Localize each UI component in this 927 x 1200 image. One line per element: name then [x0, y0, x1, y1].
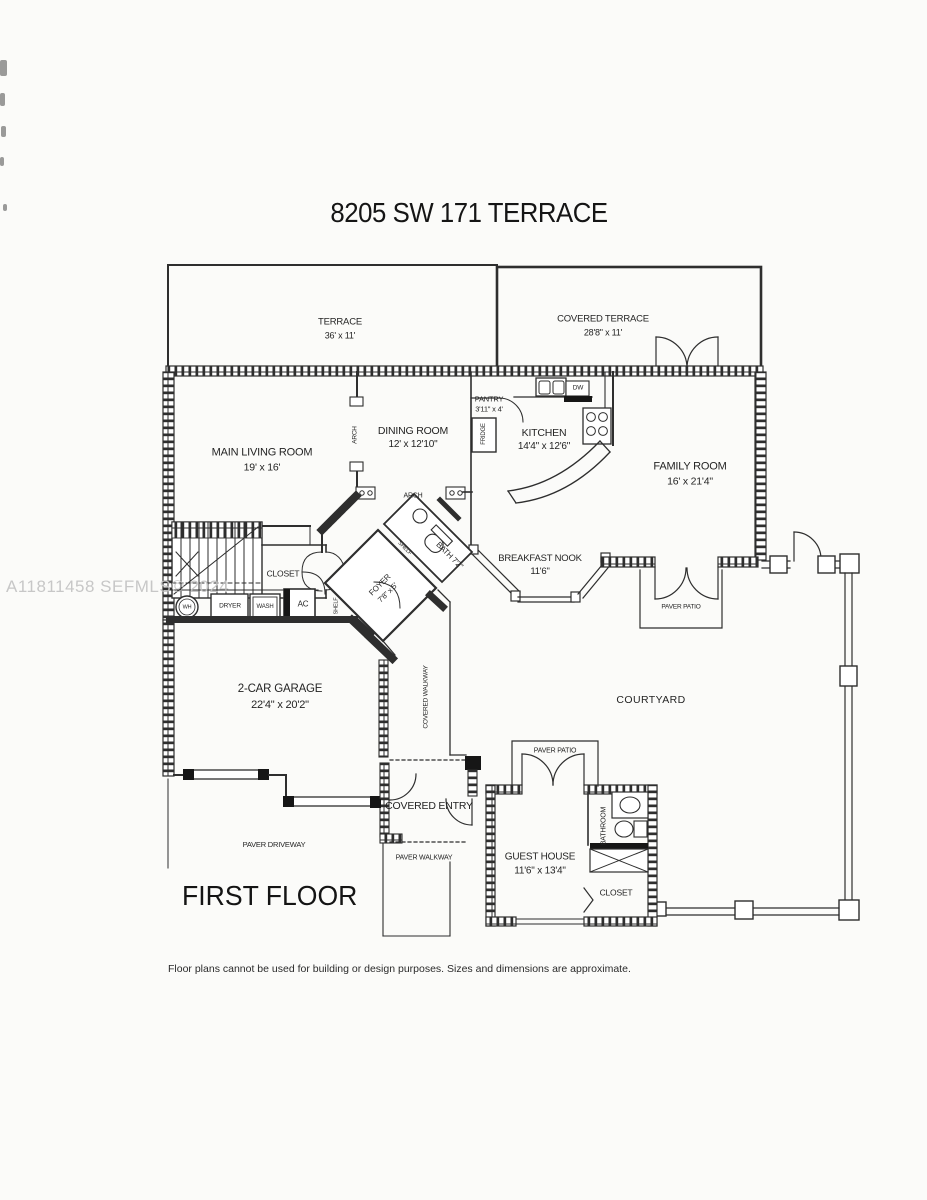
terrace-outline: [166, 265, 763, 376]
terrace-french-doors: [656, 337, 718, 368]
room-label-breakfast-nook: BREAKFAST NOOK 11'6": [498, 553, 582, 579]
room-label-pantry: PANTRY 3'11" x 4': [475, 394, 504, 414]
room-label-kitchen: KITCHEN 14'4" x 12'6": [518, 426, 570, 454]
fixture-label-arch-living: ARCH: [352, 426, 361, 444]
floorplan-drawing: [0, 0, 927, 1200]
room-label-closet-main: CLOSET: [267, 568, 300, 579]
room-label-family-room: FAMILY ROOM 16' x 21'4": [653, 459, 726, 488]
kitchen-island-counter: [516, 452, 610, 503]
family-paver-patio-outline: [640, 570, 722, 628]
fixture-label-ac: AC: [298, 600, 309, 611]
area-label-paver-driveway: PAVER DRIVEWAY: [243, 840, 306, 850]
bath-sink: [413, 509, 427, 523]
area-label-paver-patio-family: PAVER PATIO: [661, 604, 700, 613]
floorplan-page: 8205 SW 171 TERRACE: [0, 0, 927, 1200]
fixture-label-dryer: DRYER: [219, 603, 241, 612]
room-label-main-living-room: MAIN LIVING ROOM 19' x 16': [212, 445, 313, 474]
family-patio-doors: [655, 568, 686, 599]
disclaimer-text: Floor plans cannot be used for building …: [168, 963, 631, 975]
guest-patio-doors: [522, 754, 553, 785]
family-room-south-wall: [601, 557, 758, 628]
room-label-terrace: TERRACE 36' x 11': [318, 317, 362, 342]
room-label-guest-bathroom: BATHROOM: [599, 807, 608, 845]
fixture-label-dishwasher: DW: [573, 385, 583, 394]
stove-box: [583, 408, 611, 444]
area-label-paver-walkway: PAVER WALKWAY: [396, 853, 453, 862]
mls-watermark: A11811458 SEFMLS© 2024: [6, 577, 229, 597]
guest-bath-toilet: [634, 821, 647, 837]
courtyard-walls: [654, 532, 859, 920]
floor-label: FIRST FLOOR: [182, 880, 357, 912]
covered-entry-walls: [370, 756, 481, 936]
room-label-dining-room: DINING ROOM 12' x 12'10": [378, 424, 448, 452]
area-label-paver-patio-guest: PAVER PATIO: [534, 746, 576, 755]
fixture-label-fridge: FRIDGE: [480, 423, 488, 444]
fixture-label-washer: WASH: [257, 603, 274, 611]
room-label-guest-house: GUEST HOUSE 11'6" x 13'4": [505, 851, 575, 878]
room-label-garage: 2-CAR GARAGE 22'4" x 20'2": [238, 682, 323, 712]
area-label-covered-entry: COVERED ENTRY: [385, 799, 473, 813]
room-label-guest-closet: CLOSET: [600, 887, 633, 898]
courtyard-gate: [794, 532, 821, 559]
room-label-covered-terrace: COVERED TERRACE 28'8" x 11': [557, 314, 649, 339]
fixture-label-arch-dining: ARCH: [403, 491, 422, 500]
guest-closet-door: [584, 888, 593, 912]
garage-doors: [168, 769, 381, 868]
fixture-label-shelf-lower: SHELF: [333, 598, 340, 615]
entry-door-left: [390, 774, 416, 800]
area-label-covered-walkway: COVERED WALKWAY: [423, 665, 432, 728]
fixture-label-water-heater: WH: [183, 604, 192, 611]
area-label-courtyard: COURTYARD: [616, 693, 685, 707]
